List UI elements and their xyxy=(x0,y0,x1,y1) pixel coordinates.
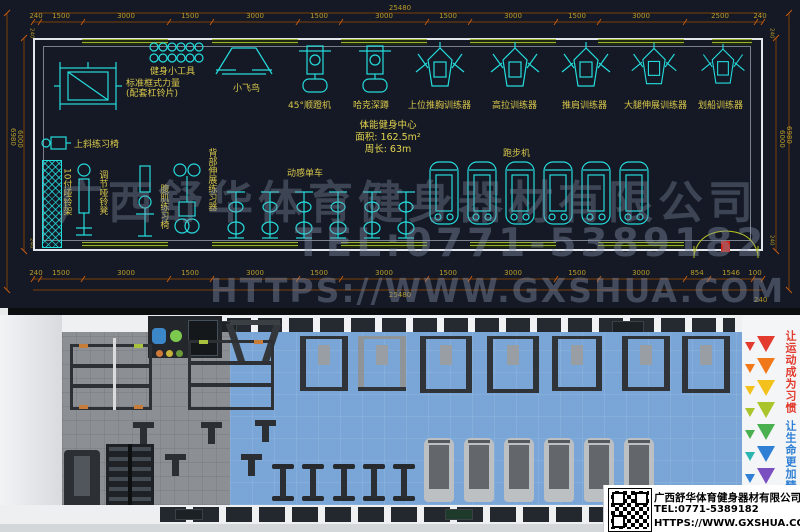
squat-rack xyxy=(188,340,274,410)
wall-triangle xyxy=(745,386,755,395)
utility-bench xyxy=(248,454,255,476)
render-bottom-windows xyxy=(160,507,605,522)
watermark-tel: TEL:0771-5389182 xyxy=(295,221,767,266)
wall-slogan-top: 让运动成为习惯 xyxy=(782,330,798,414)
wall-triangle xyxy=(757,336,775,352)
leg-extension-icon xyxy=(628,42,680,96)
label-leg-press: 45°顺蹬机 xyxy=(288,101,331,111)
dim: 1500 xyxy=(439,13,457,20)
render-left-wall xyxy=(0,315,62,525)
dim: 1500 xyxy=(52,270,70,277)
wall-triangle xyxy=(757,380,775,396)
dim: 3000 xyxy=(117,13,135,20)
render-top-black-strip xyxy=(8,308,800,315)
wall-triangle xyxy=(757,468,775,484)
info-company: 广西舒华体育健身器材有限公司 xyxy=(654,490,800,505)
room-title: 体能健身中心 xyxy=(338,120,438,132)
label-fly: 小飞鸟 xyxy=(233,84,260,94)
hack-squat-icon xyxy=(356,42,394,102)
barbell xyxy=(113,338,116,410)
plate-machine xyxy=(420,336,472,393)
room-area: 面积: 162.5m² xyxy=(338,132,438,144)
dim: 1500 xyxy=(568,13,586,20)
wall-triangle xyxy=(745,452,755,461)
dim-wall: 240 xyxy=(28,28,34,39)
dim: 240 xyxy=(753,13,766,20)
info-url: HTTPS://WWW.GXSHUA.COM xyxy=(654,518,800,529)
spin-bike-3d xyxy=(393,464,415,502)
qr-code xyxy=(609,489,651,531)
plate-machine xyxy=(487,336,539,393)
plate-machine xyxy=(682,336,730,393)
power-rack-icon xyxy=(52,60,124,116)
wall-triangle xyxy=(757,358,775,374)
treadmill-3d xyxy=(504,438,534,502)
info-tel: TEL:0771-5389182 xyxy=(654,504,759,515)
label-rack-1: 标准框式力量 xyxy=(126,79,180,89)
dim-left-outer: 6980 xyxy=(9,128,16,146)
plate-machine xyxy=(552,336,602,391)
plate-machine xyxy=(300,336,348,391)
plate-machine xyxy=(358,336,406,391)
dim: 240 xyxy=(29,13,42,20)
label-tools: 健身小工具 xyxy=(150,67,195,77)
incline-chest-press-icon xyxy=(412,42,468,98)
wall-triangle xyxy=(757,424,775,440)
dim: 2500 xyxy=(711,13,729,20)
plate-machine xyxy=(622,336,670,391)
squat-rack xyxy=(70,344,152,410)
label-lat-pulldown: 高拉训练器 xyxy=(492,101,537,111)
med-balls xyxy=(156,350,163,357)
wall-triangle xyxy=(745,342,755,351)
screenshot-root: 25480 240 1500 3000 1500 3000 1500 3000 … xyxy=(0,0,800,532)
dim-wall: 240 xyxy=(768,28,774,39)
wall-triangle xyxy=(745,408,755,417)
dim-wall: 240 xyxy=(768,235,774,246)
flat-bench xyxy=(208,422,215,444)
wall-triangle xyxy=(757,446,775,462)
spin-bike-3d xyxy=(363,464,385,502)
wall-triangle xyxy=(745,430,755,439)
bench-pad xyxy=(74,456,90,496)
cable-fly-icon xyxy=(212,42,276,82)
dim: 3000 xyxy=(246,13,264,20)
label-treadmill: 跑步机 xyxy=(503,149,530,159)
spin-bike-3d xyxy=(333,464,355,502)
dumbbell-rack-3d xyxy=(106,444,154,510)
spin-bike-3d xyxy=(302,464,324,502)
dim-right-outer: 6980 xyxy=(785,126,792,144)
foam-roller xyxy=(152,328,166,344)
label-shoulder-press: 推肩训练器 xyxy=(562,101,607,111)
dim: 1500 xyxy=(310,13,328,20)
room-perimeter: 周长: 63m xyxy=(338,144,438,156)
wall-triangle xyxy=(757,402,775,418)
tools-icon xyxy=(148,40,204,70)
room-info: 体能健身中心 面积: 162.5m² 周长: 63m xyxy=(338,120,438,156)
rack-divider xyxy=(128,444,132,510)
dim: 3000 xyxy=(117,270,135,277)
watermark-url: HTTPS://WWW.GXSHUA.COM xyxy=(210,271,785,308)
wall-triangle xyxy=(745,474,755,483)
dim: 3000 xyxy=(504,13,522,20)
label-incline-bench: 上斜练习椅 xyxy=(74,140,119,150)
utility-bench xyxy=(172,454,179,476)
dim-left-inner: 6000 xyxy=(16,130,23,148)
treadmill-3d xyxy=(424,438,454,502)
shoulder-press-icon xyxy=(558,42,614,98)
wall-triangle xyxy=(745,364,755,373)
spin-bike-3d xyxy=(272,464,294,502)
dim: 1500 xyxy=(181,13,199,20)
label-rowing: 划船训练器 xyxy=(698,101,743,111)
incline-bench-3d xyxy=(64,450,100,508)
dim: 3000 xyxy=(632,13,650,20)
leg-press-45-icon xyxy=(296,42,334,100)
company-info-box: 广西舒华体育健身器材有限公司 TEL:0771-5389182 HTTPS://… xyxy=(603,485,800,532)
wall-vent xyxy=(175,509,203,520)
dim-top-total: 25480 xyxy=(389,5,411,12)
flat-bench xyxy=(140,422,147,444)
treadmill-3d xyxy=(544,438,574,502)
label-hack-squat: 哈克深蹲 xyxy=(353,101,389,111)
render-3d-top-view: 让运动成为习惯 让生命更加精彩 广西舒华体育健身器材有限公司 TEL:0771-… xyxy=(0,308,800,532)
label-leg-extension: 大腿伸展训练器 xyxy=(624,101,687,111)
lat-pulldown-icon xyxy=(487,42,543,98)
treadmill-3d xyxy=(464,438,494,502)
label-rack-2: (配套杠铃片) xyxy=(126,89,178,99)
label-chest-press: 上位推胸训练器 xyxy=(408,101,471,111)
wall-vent xyxy=(445,509,473,520)
exercise-ball xyxy=(170,330,182,342)
dim-right-inner: 6000 xyxy=(778,130,785,148)
dim: 240 xyxy=(29,270,42,277)
dim: 1500 xyxy=(52,13,70,20)
dim: 1500 xyxy=(181,270,199,277)
rowing-machine-icon xyxy=(698,42,748,96)
incline-bench-icon xyxy=(40,134,72,156)
cable-bar xyxy=(230,320,280,325)
cad-floor-plan: 25480 240 1500 3000 1500 3000 1500 3000 … xyxy=(0,0,800,308)
flat-bench xyxy=(262,420,269,442)
dim: 3000 xyxy=(375,13,393,20)
